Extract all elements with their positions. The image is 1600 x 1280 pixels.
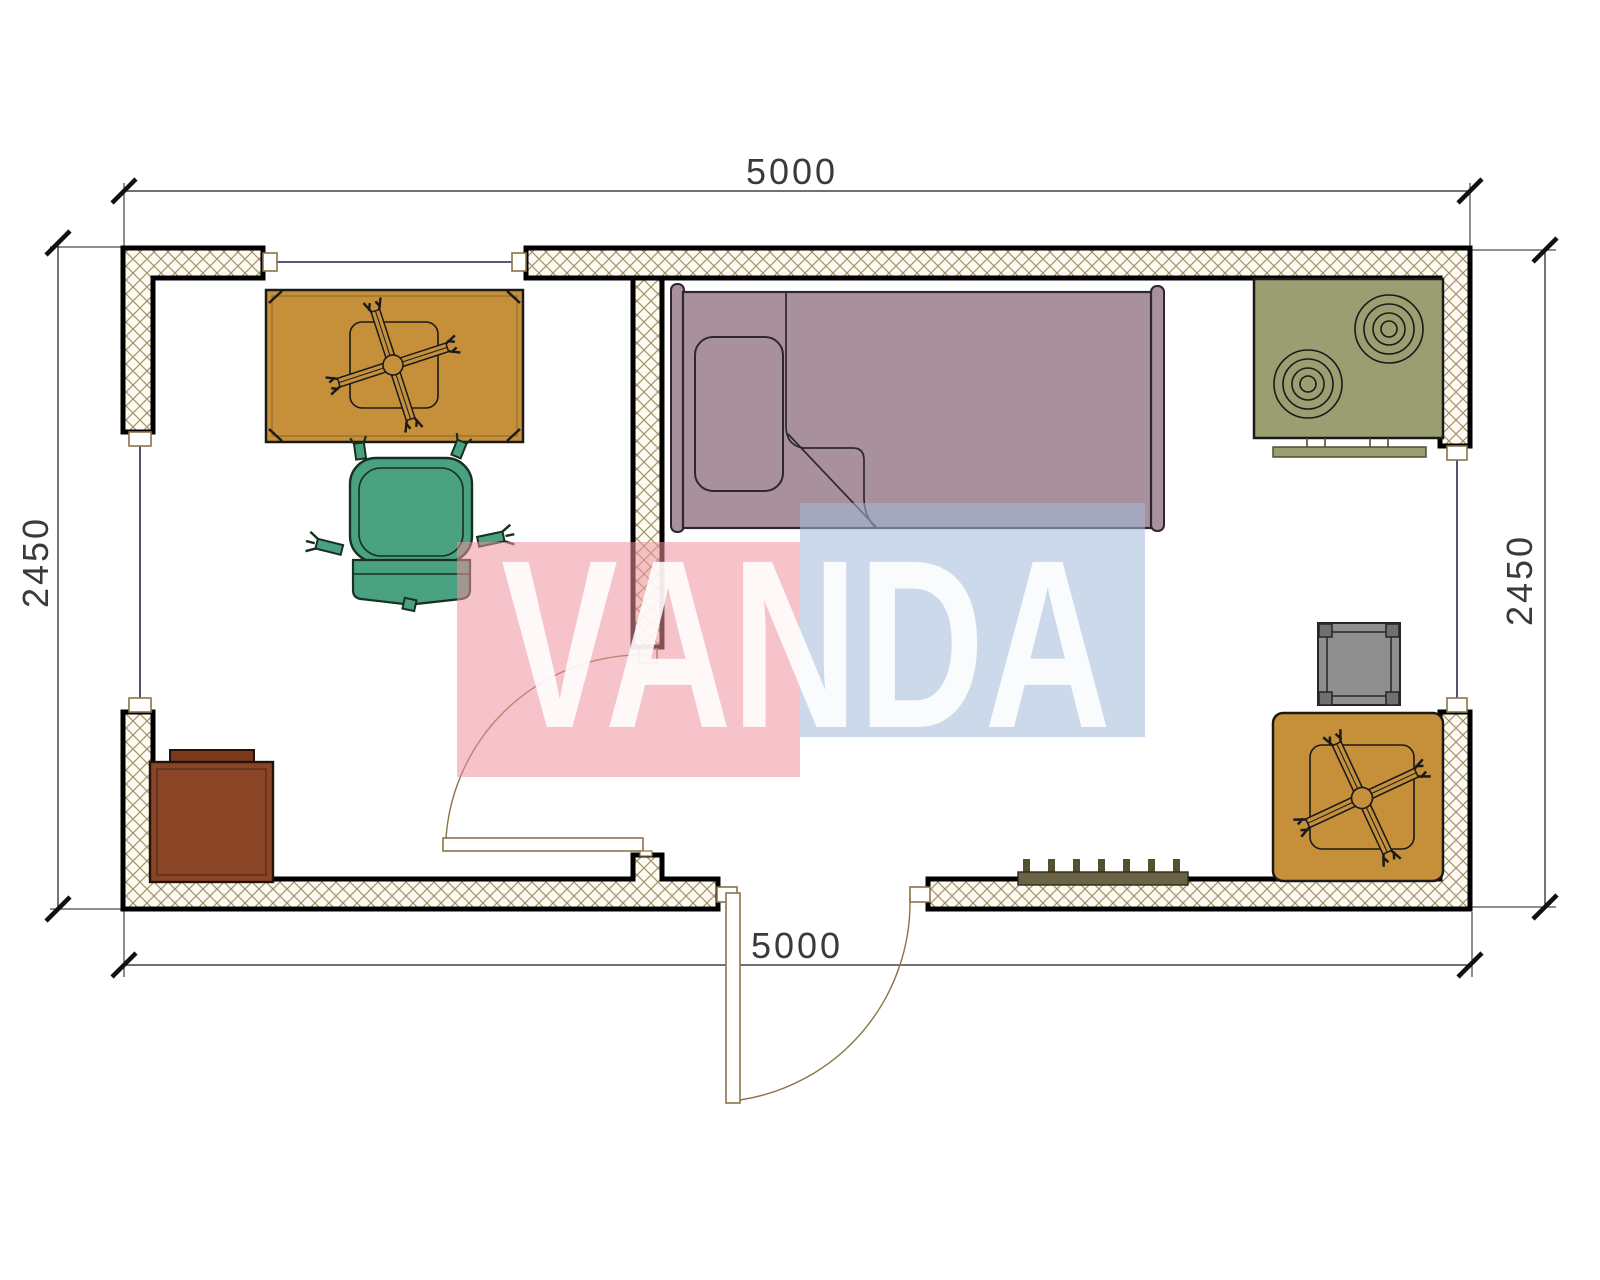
jamb-left-window-top xyxy=(129,432,151,446)
dimension-label-bottom: 5000 xyxy=(751,925,843,966)
bed-footboard xyxy=(1151,286,1164,531)
interior-door-leaf xyxy=(443,838,643,851)
cabinet xyxy=(150,750,273,882)
exterior-door-leaf xyxy=(726,893,740,1103)
watermark: VANDA xyxy=(457,503,1145,778)
jamb-top-window-right xyxy=(512,253,526,271)
wall-top-left-corner xyxy=(123,248,263,432)
interior-door-hinge xyxy=(640,851,652,856)
stove xyxy=(1254,279,1443,457)
jamb-exterior-door-right xyxy=(910,887,930,902)
floor-plan-canvas: 5000 5000 2450 2450 xyxy=(0,0,1600,1280)
chair-seat-front xyxy=(353,560,470,605)
jamb-right-window-bottom xyxy=(1447,698,1467,712)
stove-shelf xyxy=(1273,447,1426,457)
table-bottom-right xyxy=(1267,703,1457,893)
jamb-left-window-bottom xyxy=(129,698,151,712)
small-square-table xyxy=(1318,623,1400,705)
bed xyxy=(671,284,1164,532)
radiator xyxy=(1018,859,1188,885)
dimension-label-top: 5000 xyxy=(746,151,838,192)
dimension-label-left: 2450 xyxy=(15,516,56,608)
jamb-top-window-left xyxy=(263,253,277,271)
jamb-right-window-top xyxy=(1447,446,1467,460)
chair-backrest xyxy=(350,458,472,562)
table-top-left xyxy=(266,279,523,450)
watermark-text: VANDA xyxy=(501,510,1111,778)
floor-plan-drawing: 5000 5000 2450 2450 xyxy=(0,0,1600,1280)
dimension-label-right: 2450 xyxy=(1499,534,1540,626)
bed-mattress xyxy=(683,292,1151,528)
